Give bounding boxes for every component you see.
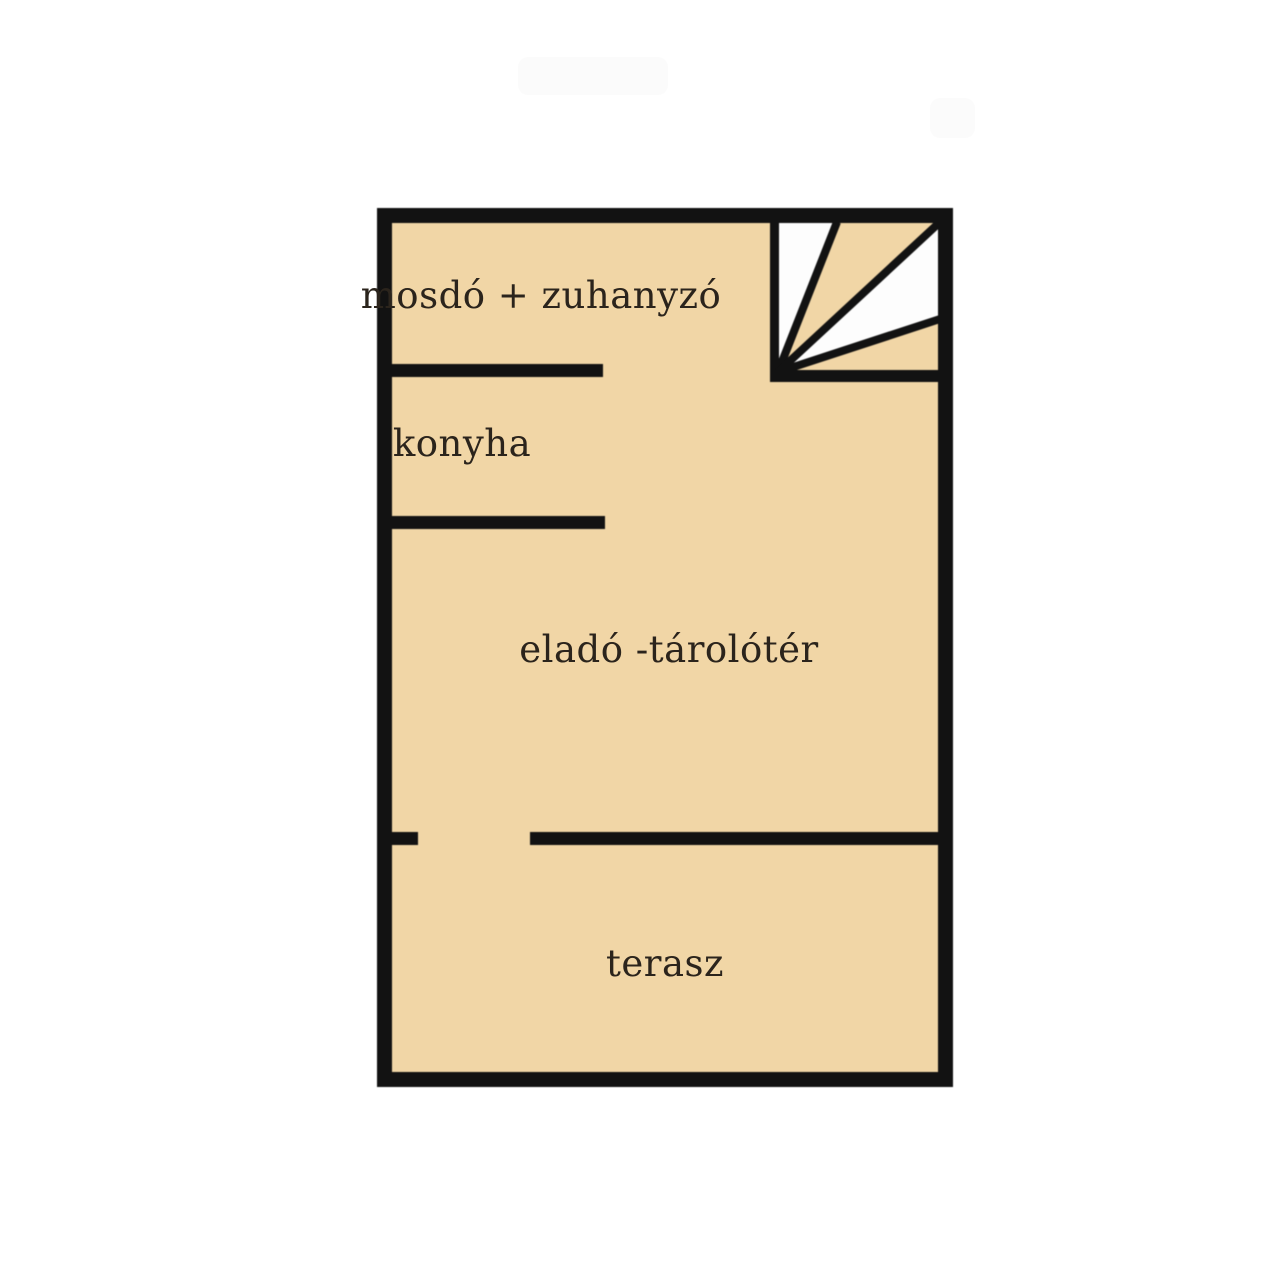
room-label-elado-taroloter: eladó -tárolótér xyxy=(519,629,818,672)
partition-wall-bathroom xyxy=(388,364,603,377)
partition-wall-kitchen xyxy=(388,516,605,529)
stair-fan-bottom-edge xyxy=(770,370,945,382)
floor-plan-page: mosdó + zuhanyzó konyha eladó -tárolótér… xyxy=(0,0,1280,1280)
partition-wall-terrace-main xyxy=(530,832,945,845)
room-label-konyha: konyha xyxy=(393,423,531,466)
room-label-mosdo-zuhanyzo: mosdó + zuhanyzó xyxy=(361,275,722,318)
room-label-terasz: terasz xyxy=(606,943,724,986)
